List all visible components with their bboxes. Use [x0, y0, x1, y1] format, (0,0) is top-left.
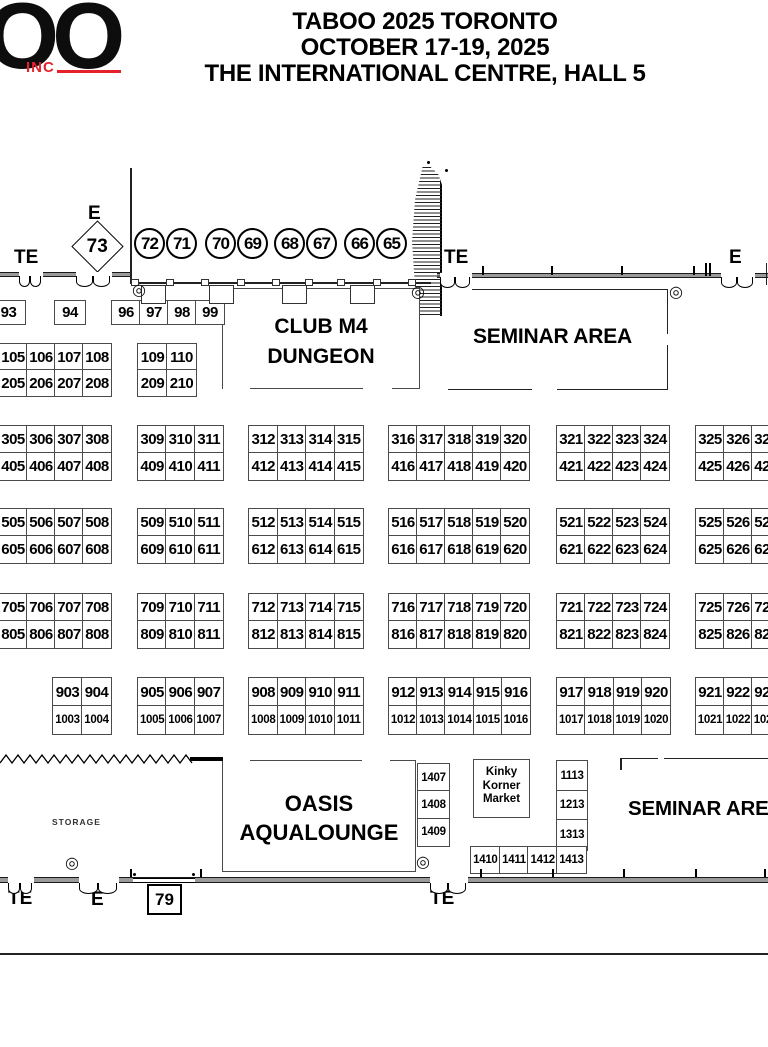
- booth-cell: 508: [83, 509, 111, 536]
- booth-cell: 426: [724, 453, 752, 480]
- seminar-bottom-top-border: [620, 758, 658, 760]
- spiral-icon: ◎: [416, 855, 430, 871]
- booth-cell: 525: [696, 509, 724, 536]
- booth-cell: 1411: [500, 847, 529, 873]
- booth-cell: 309: [138, 426, 166, 453]
- booth-cell: 806: [27, 621, 55, 648]
- booth-cell: 305: [0, 426, 27, 453]
- booth-cell: 923: [752, 678, 768, 706]
- seminar-top-border: [472, 289, 668, 291]
- column-box: [282, 285, 307, 304]
- booth-cell: 914: [445, 678, 473, 706]
- booth-cell: 708: [83, 594, 111, 621]
- door-arc-icon: [19, 276, 30, 287]
- booth-cell: 912: [389, 678, 417, 706]
- booth-cell: 523: [613, 509, 641, 536]
- lower-boundary-line: [0, 953, 768, 955]
- booth-cell: 622: [585, 536, 613, 563]
- booth-block: 509510511609610611: [137, 508, 224, 564]
- booth-cell: 513: [278, 509, 307, 536]
- booth-cell: 725: [696, 594, 724, 621]
- booth-block: 921922923102110221023: [695, 677, 768, 735]
- column-box: [209, 285, 234, 304]
- booth-cell: 911: [335, 678, 364, 706]
- booth-cell: 615: [335, 536, 364, 563]
- booth-cell: 207: [55, 370, 83, 396]
- booth-cell: 711: [195, 594, 223, 621]
- booth-cell: 626: [724, 536, 752, 563]
- booth-cell: 724: [641, 594, 669, 621]
- booth-cell: 824: [641, 621, 669, 648]
- booth-cell: 318: [445, 426, 473, 453]
- booth-cell: 96: [112, 301, 140, 324]
- seminar-area-top-label: SEMINAR AREA: [473, 325, 632, 349]
- floor-plan: OO INC TABOO 2025 TORONTO OCTOBER 17-19,…: [0, 0, 768, 1047]
- booth-cell: 605: [0, 536, 27, 563]
- booth-cell: 316: [389, 426, 417, 453]
- booth-cell: 98: [168, 301, 196, 324]
- booth-cell: 517: [417, 509, 445, 536]
- booth-cell: 406: [27, 453, 55, 480]
- seminar-right-border: [667, 345, 669, 390]
- booth-circle: 72: [134, 228, 165, 259]
- booth-block: 525526527625626627: [695, 508, 768, 564]
- booth-cell: 420: [501, 453, 529, 480]
- booth-cell: 827: [752, 621, 768, 648]
- booth-cell: 1113: [557, 761, 587, 791]
- booth-cell: 910: [306, 678, 335, 706]
- booth-block: 94: [54, 300, 86, 325]
- booth-block: 905906907100510061007: [137, 677, 224, 735]
- booth-cell: 208: [83, 370, 111, 396]
- spiral-icon: ◎: [65, 856, 79, 872]
- booth-cell: 715: [335, 594, 364, 621]
- door-arc-icon: [455, 277, 470, 288]
- booth-circle: 65: [376, 228, 407, 259]
- door-arc-icon: [20, 883, 32, 894]
- booth-cell: 719: [473, 594, 501, 621]
- booth-cell: 625: [696, 536, 724, 563]
- booth-cell: 424: [641, 453, 669, 480]
- panel-dot: [133, 873, 136, 876]
- wall-stub: [190, 757, 223, 761]
- booth-cell: 818: [445, 621, 473, 648]
- booth-cell: 611: [195, 536, 223, 563]
- booth-cell: 809: [138, 621, 166, 648]
- booth-cell: 825: [696, 621, 724, 648]
- booth-cell: 414: [306, 453, 335, 480]
- booth-cell: 413: [278, 453, 307, 480]
- booth-block: 321322323324421422423424: [556, 425, 670, 481]
- booth-cell: 310: [166, 426, 194, 453]
- title-line1: TABOO 2025 TORONTO: [125, 9, 725, 35]
- booth-cell: 623: [613, 536, 641, 563]
- booth-block: 712713714715812813814815: [248, 593, 364, 649]
- booth-cell: 716: [389, 594, 417, 621]
- booth-cell: 820: [501, 621, 529, 648]
- wall-booth-back-line: [130, 282, 431, 284]
- door-arc-icon: [79, 883, 98, 894]
- booth-cell: 1014: [445, 706, 473, 734]
- booth-cell: 720: [501, 594, 529, 621]
- booth-cell: 1020: [642, 706, 670, 734]
- booth-cell: 105: [0, 344, 27, 370]
- booth-cell: 317: [417, 426, 445, 453]
- booth-cell: 505: [0, 509, 27, 536]
- seminar-right-border: [667, 289, 669, 334]
- tick-mark: [695, 869, 697, 877]
- booth-circle: 67: [306, 228, 337, 259]
- booth-cell: 516: [389, 509, 417, 536]
- booth-cell: 619: [473, 536, 501, 563]
- booth-cell: 306: [27, 426, 55, 453]
- door-arc-icon: [737, 277, 753, 288]
- tick-mark: [130, 869, 132, 877]
- booth-block: 1410141114121413: [470, 846, 587, 874]
- booth-cell: 921: [696, 678, 724, 706]
- tick-mark: [480, 869, 482, 877]
- booth-cell: 308: [83, 426, 111, 453]
- booth-block: 716717718719720816817818819820: [388, 593, 530, 649]
- korner-label: Korner: [474, 780, 529, 794]
- booth-cell: 407: [55, 453, 83, 480]
- booth-cell: 621: [557, 536, 585, 563]
- oasis-aqualounge-area: OASIS AQUALOUNGE: [222, 760, 416, 872]
- spiral-icon: ◎: [669, 285, 683, 301]
- booth-cell: 416: [389, 453, 417, 480]
- booth-cell: 714: [306, 594, 335, 621]
- outlet-icon: [305, 279, 313, 286]
- booth-cell: 1018: [585, 706, 613, 734]
- door-arc-icon: [93, 276, 110, 287]
- booth-circle: 68: [274, 228, 305, 259]
- booth-cell: 919: [614, 678, 642, 706]
- booth-circle: 69: [237, 228, 268, 259]
- booth-cell: 1023: [752, 706, 768, 734]
- oasis-label: OASIS: [223, 789, 415, 818]
- booth-cell: 518: [445, 509, 473, 536]
- booth-cell: 917: [557, 678, 585, 706]
- booth-cell: 811: [195, 621, 223, 648]
- booth-cell: 823: [613, 621, 641, 648]
- wall-vertical-divider: [130, 168, 132, 283]
- booth-cell: 616: [389, 536, 417, 563]
- booth-cell: 1410: [471, 847, 500, 873]
- door-arc-icon: [76, 276, 93, 287]
- booth-cell: 908: [249, 678, 278, 706]
- booth-cell: 1021: [696, 706, 724, 734]
- spiral-icon: ◎: [132, 283, 146, 299]
- booth-block: 96979899: [111, 300, 225, 325]
- booth-cell: 106: [27, 344, 55, 370]
- booth-block: 721722723724821822823824: [556, 593, 670, 649]
- tick-mark: [551, 266, 553, 275]
- booth-cell: 511: [195, 509, 223, 536]
- title-line2: OCTOBER 17-19, 2025: [125, 35, 725, 61]
- market-label: Market: [474, 793, 529, 807]
- outlet-icon: [337, 279, 345, 286]
- tick-mark: [200, 869, 202, 877]
- booth-block: 316317318319320416417418419420: [388, 425, 530, 481]
- booth-cell: 707: [55, 594, 83, 621]
- booth-cell: 425: [696, 453, 724, 480]
- booth-cell: 417: [417, 453, 445, 480]
- booth-cell: 108: [83, 344, 111, 370]
- booth-block: 109110209210: [137, 343, 197, 397]
- booth-cell: 1213: [557, 791, 587, 821]
- wall-top-right: [437, 273, 768, 278]
- booth-cell: 327: [752, 426, 768, 453]
- outlet-icon: [272, 279, 280, 286]
- booth-block: 140714081409: [417, 763, 450, 847]
- booth-cell: 726: [724, 594, 752, 621]
- tower-dot: [445, 169, 448, 172]
- booth-cell: 813: [278, 621, 307, 648]
- tick-mark: [764, 869, 766, 877]
- booth-cell: 916: [502, 678, 530, 706]
- booth-cell: 415: [335, 453, 364, 480]
- booth-cell: 325: [696, 426, 724, 453]
- booth-cell: 723: [613, 594, 641, 621]
- booth-cell: 1013: [417, 706, 445, 734]
- booth-cell: 904: [82, 678, 111, 706]
- booth-block: 9179189199201017101810191020: [556, 677, 671, 735]
- booth-cell: 99: [196, 301, 224, 324]
- booth-block: 725726727825826827: [695, 593, 768, 649]
- tick-mark: [482, 266, 484, 275]
- booth-cell: 810: [166, 621, 194, 648]
- booth-cell: 515: [335, 509, 364, 536]
- door-arc-icon: [8, 883, 20, 894]
- booth-block: 512513514515612613614615: [248, 508, 364, 564]
- tick-mark: [621, 266, 623, 275]
- club-border-gap: [363, 388, 392, 391]
- booth-cell: 1003: [53, 706, 82, 734]
- seminar-bottom-top-border: [664, 758, 768, 760]
- spiral-icon: ◎: [411, 285, 425, 301]
- booth-cell: 805: [0, 621, 27, 648]
- door-arc-icon: [440, 277, 455, 288]
- booth-cell: 322: [585, 426, 613, 453]
- booth-73-diamond: 73: [71, 220, 123, 272]
- seminar-bottom-border: [557, 389, 667, 391]
- oasis-border-gap: [223, 759, 250, 762]
- booth-cell: 405: [0, 453, 27, 480]
- booth-cell: 1011: [335, 706, 364, 734]
- booth-cell: 819: [473, 621, 501, 648]
- booth-cell: 713: [278, 594, 307, 621]
- seminar-bottom-left-border: [620, 758, 622, 770]
- booth-cell: 109: [138, 344, 167, 370]
- booth-block: 93: [0, 300, 26, 325]
- booth-cell: 624: [641, 536, 669, 563]
- booth-cell: 110: [167, 344, 196, 370]
- tick-mark: [709, 263, 711, 276]
- booth-cell: 903: [53, 678, 82, 706]
- booth-cell: 913: [417, 678, 445, 706]
- page-title: TABOO 2025 TORONTO OCTOBER 17-19, 2025 T…: [125, 9, 725, 87]
- wall-panel: [133, 878, 195, 883]
- booth-cell: 709: [138, 594, 166, 621]
- booth-cell: 408: [83, 453, 111, 480]
- booth-cell: 527: [752, 509, 768, 536]
- booth-cell: 612: [249, 536, 278, 563]
- booth-cell: 509: [138, 509, 166, 536]
- booth-cell: 816: [389, 621, 417, 648]
- booth-cell: 1009: [278, 706, 307, 734]
- booth-cell: 1010: [306, 706, 335, 734]
- booth-cell: 727: [752, 594, 768, 621]
- booth-cell: 311: [195, 426, 223, 453]
- kinky-label: Kinky: [474, 766, 529, 780]
- booth-cell: 409: [138, 453, 166, 480]
- booth-cell: 419: [473, 453, 501, 480]
- taboo-logo: OO: [0, 0, 118, 90]
- booth-cell: 1019: [614, 706, 642, 734]
- booth-cell: 905: [138, 678, 166, 706]
- zigzag-wall: [0, 754, 193, 765]
- kinky-korner-market-area: Kinky Korner Market: [473, 759, 530, 818]
- booth-cell: 522: [585, 509, 613, 536]
- booth-cell: 423: [613, 453, 641, 480]
- booth-cell: 706: [27, 594, 55, 621]
- entrance-e-top-right: E: [729, 247, 742, 269]
- booth-cell: 705: [0, 594, 27, 621]
- booth-cell: 915: [474, 678, 502, 706]
- outlet-icon: [201, 279, 209, 286]
- booth-block: 90390410031004: [52, 677, 112, 735]
- booth-block: 111312131313: [556, 760, 588, 851]
- aqualounge-label: AQUALOUNGE: [223, 818, 415, 847]
- booth-cell: 906: [166, 678, 194, 706]
- tick-mark: [623, 869, 625, 877]
- booth-block: 709710711809810811: [137, 593, 224, 649]
- booth-cell: 618: [445, 536, 473, 563]
- outlet-icon: [237, 279, 245, 286]
- booth-cell: 507: [55, 509, 83, 536]
- booth-cell: 1012: [389, 706, 417, 734]
- booth-cell: 521: [557, 509, 585, 536]
- booth-cell: 814: [306, 621, 335, 648]
- door-arc-icon: [721, 277, 737, 288]
- booth-block: 705706707708805806807808: [0, 593, 112, 649]
- booth-cell: 812: [249, 621, 278, 648]
- booth-79: 79: [147, 884, 182, 915]
- oasis-border-gap: [362, 759, 390, 762]
- booth-cell: 920: [642, 678, 670, 706]
- booth-cell: 907: [195, 678, 223, 706]
- booth-cell: 1408: [418, 791, 449, 818]
- booth-cell: 1409: [418, 819, 449, 846]
- booth-cell: 1413: [557, 847, 586, 873]
- booth-cell: 614: [306, 536, 335, 563]
- booth-cell: 1007: [195, 706, 223, 734]
- panel-dot: [192, 873, 195, 876]
- booth-cell: 1407: [418, 764, 449, 791]
- seminar-area-bottom-label: SEMINAR AREA: [628, 797, 768, 821]
- booth-cell: 1017: [557, 706, 585, 734]
- booth-cell: 94: [55, 301, 85, 324]
- door-arc-icon: [430, 883, 448, 894]
- booth-cell: 205: [0, 370, 27, 396]
- club-m4-dungeon-area: CLUB M4 DUNGEON: [222, 288, 420, 389]
- booth-cell: 97: [140, 301, 168, 324]
- booth-cell: 326: [724, 426, 752, 453]
- booth-cell: 514: [306, 509, 335, 536]
- booth-cell: 510: [166, 509, 194, 536]
- booth-cell: 418: [445, 453, 473, 480]
- booth-cell: 315: [335, 426, 364, 453]
- booth-block: 521522523524621622623624: [556, 508, 670, 564]
- column-box: [350, 285, 375, 304]
- booth-cell: 411: [195, 453, 223, 480]
- tick-mark: [705, 263, 707, 276]
- booth-cell: 821: [557, 621, 585, 648]
- booth-cell: 617: [417, 536, 445, 563]
- booth-cell: 210: [167, 370, 196, 396]
- entrance-te-top-right: TE: [444, 247, 468, 269]
- booth-cell: 410: [166, 453, 194, 480]
- booth-cell: 606: [27, 536, 55, 563]
- booth-cell: 506: [27, 509, 55, 536]
- booth-cell: 427: [752, 453, 768, 480]
- booth-cell: 209: [138, 370, 167, 396]
- club-m4-label: CLUB M4: [223, 312, 419, 342]
- booth-cell: 321: [557, 426, 585, 453]
- booth-cell: 815: [335, 621, 364, 648]
- door-arc-icon: [98, 883, 117, 894]
- booth-cell: 909: [278, 678, 307, 706]
- outlet-icon: [166, 279, 174, 286]
- booth-cell: 520: [501, 509, 529, 536]
- entrance-te-top-left: TE: [14, 247, 38, 269]
- booth-cell: 607: [55, 536, 83, 563]
- tick-mark: [693, 266, 695, 275]
- booth-73-label: 73: [87, 235, 108, 257]
- booth-cell: 1005: [138, 706, 166, 734]
- booth-circle: 66: [344, 228, 375, 259]
- booth-cell: 1008: [249, 706, 278, 734]
- booth-cell: 312: [249, 426, 278, 453]
- club-border-gap: [223, 388, 250, 391]
- logo-red-line: [57, 70, 121, 73]
- booth-cell: 93: [0, 301, 25, 324]
- tower-dot: [427, 161, 430, 164]
- door-arc-icon: [448, 883, 466, 894]
- booth-cell: 524: [641, 509, 669, 536]
- booth-cell: 512: [249, 509, 278, 536]
- booth-cell: 609: [138, 536, 166, 563]
- wall-right-edge: [766, 263, 768, 285]
- booth-cell: 206: [27, 370, 55, 396]
- booth-block: 9089099109111008100910101011: [248, 677, 364, 735]
- title-line3: THE INTERNATIONAL CENTRE, HALL 5: [125, 61, 725, 87]
- booth-cell: 710: [166, 594, 194, 621]
- booth-cell: 526: [724, 509, 752, 536]
- booth-cell: 717: [417, 594, 445, 621]
- booth-cell: 421: [557, 453, 585, 480]
- booth-cell: 320: [501, 426, 529, 453]
- booth-cell: 620: [501, 536, 529, 563]
- booth-block: 505506507508605606607608: [0, 508, 112, 564]
- outlet-icon: [373, 279, 381, 286]
- booth-cell: 610: [166, 536, 194, 563]
- booth-cell: 314: [306, 426, 335, 453]
- taboo-logo-inc: INC: [26, 59, 55, 76]
- booth-cell: 613: [278, 536, 307, 563]
- booth-cell: 313: [278, 426, 307, 453]
- booth-cell: 722: [585, 594, 613, 621]
